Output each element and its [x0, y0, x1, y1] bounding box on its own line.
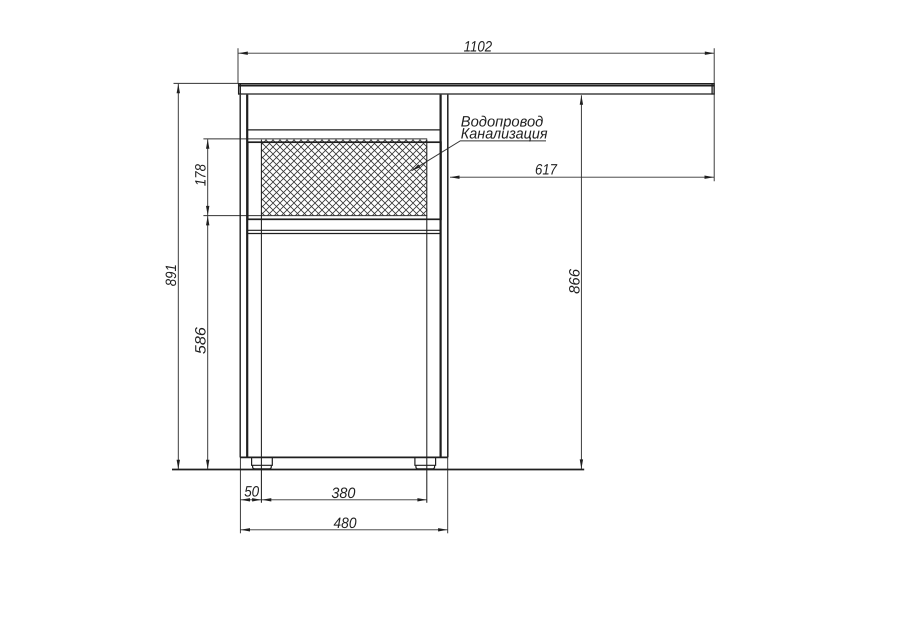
svg-text:586: 586 — [193, 326, 210, 354]
svg-text:866: 866 — [566, 268, 583, 294]
svg-text:891: 891 — [163, 264, 180, 286]
svg-text:Канализация: Канализация — [461, 126, 548, 143]
svg-text:380: 380 — [331, 485, 356, 502]
svg-text:50: 50 — [244, 484, 260, 501]
svg-text:178: 178 — [192, 164, 209, 187]
svg-text:1102: 1102 — [464, 38, 493, 55]
svg-text:480: 480 — [334, 515, 358, 532]
svg-text:617: 617 — [535, 162, 558, 179]
